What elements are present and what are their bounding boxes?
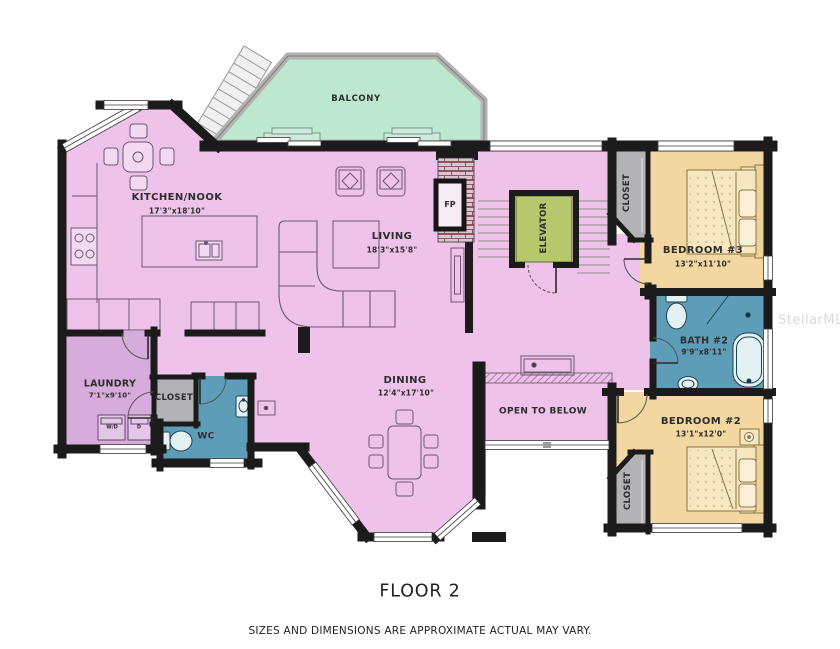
dryer-label: D (137, 426, 141, 431)
laundry-label: LAUNDRY (84, 379, 136, 389)
fireplace-label: FP (444, 201, 455, 209)
wc-label: WC (197, 433, 214, 442)
open-to-below-railing (485, 441, 609, 450)
bedroom3-dims: 13'2"x11'10" (675, 260, 731, 268)
balcony-label: BALCONY (331, 95, 380, 104)
bath2-label: BATH #2 (680, 336, 728, 346)
disclaimer-text: SIZES AND DIMENSIONS ARE APPROXIMATE ACT… (248, 626, 591, 637)
floor-title: FLOOR 2 (379, 583, 460, 601)
kitchen-dims: 17'3"x18'10" (149, 207, 205, 215)
cooktop (71, 228, 97, 265)
dining-label: DINING (383, 376, 426, 386)
living-label: LIVING (372, 232, 413, 242)
dining-dims: 12'4"x17'10" (378, 389, 434, 397)
bedroom3-label: BEDROOM #3 (663, 246, 743, 256)
closet-bedroom2-label: CLOSET (624, 472, 633, 510)
washer-label: W/D (106, 426, 118, 431)
bath2-dims: 9'9"x8'11" (681, 348, 726, 356)
bedroom2-dims: 13'1"x12'0" (676, 430, 727, 438)
living-dims: 18'3"x15'8" (367, 246, 418, 254)
elevator-label: ELEVATOR (540, 203, 549, 254)
open-to-below-label: OPEN TO BELOW (499, 408, 587, 417)
kitchen-label: KITCHEN/NOOK (132, 193, 223, 203)
floor-plan-canvas: BALCONY KITCHEN/NOOK 17'3"x18'10" LIVING… (0, 0, 840, 649)
closet-bedroom3-label: CLOSET (623, 174, 632, 212)
laundry-dims: 7'1"x9'10" (89, 393, 131, 400)
closet-hall-label: CLOSET (155, 394, 193, 403)
floor-plan-drawing (0, 0, 840, 649)
watermark: StellarMLS (778, 313, 840, 328)
bedroom2-label: BEDROOM #2 (661, 417, 741, 427)
